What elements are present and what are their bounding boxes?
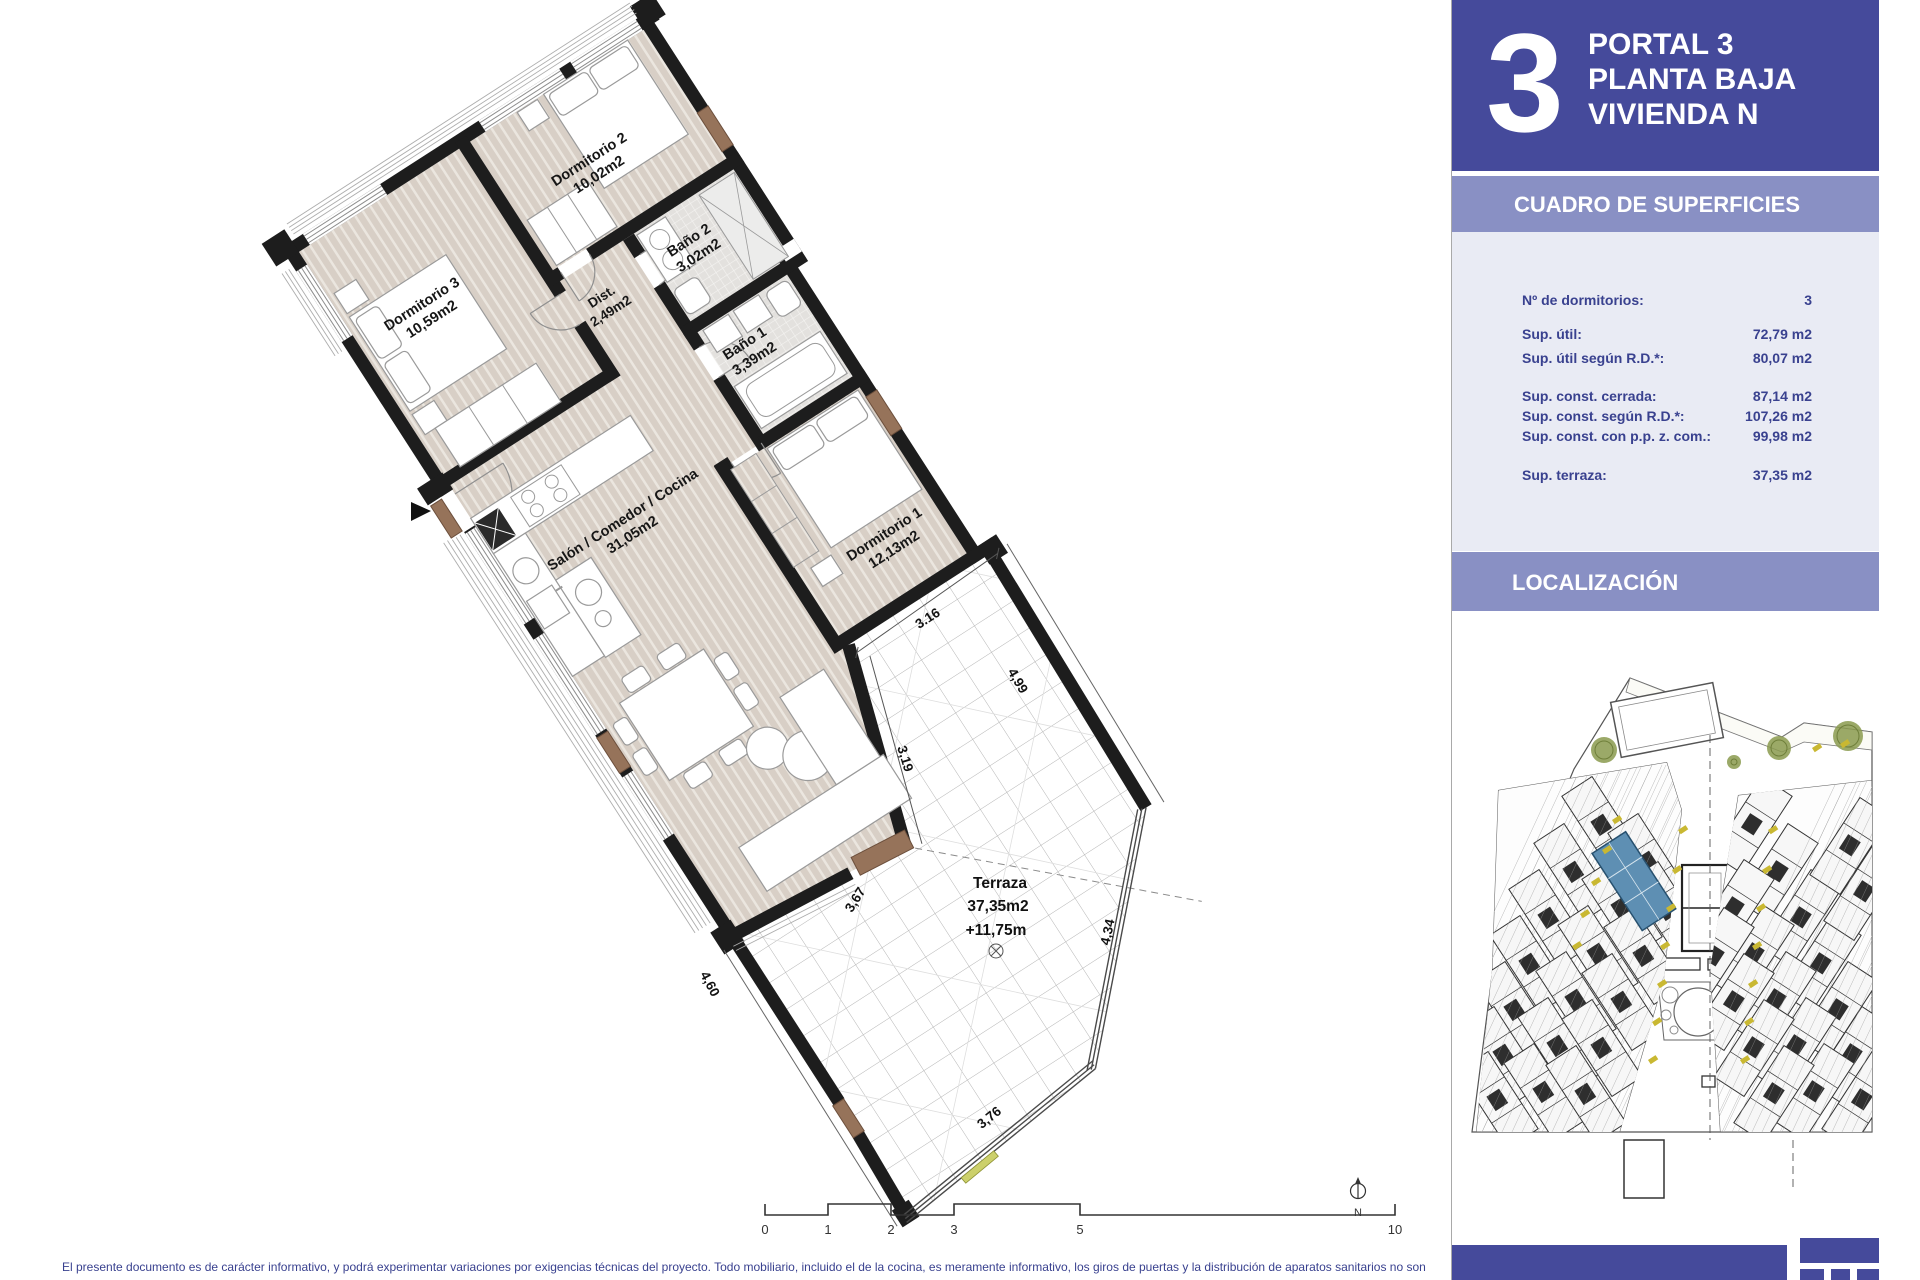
svg-text:37,35m2: 37,35m2 [967,898,1028,915]
svg-text:4,60: 4,60 [697,969,723,999]
svg-text:Terraza: Terraza [973,875,1027,892]
svg-text:10: 10 [1388,1222,1402,1237]
svg-text:2: 2 [887,1222,894,1237]
svg-text:+11,75m: +11,75m [966,922,1027,939]
svg-text:0: 0 [761,1222,768,1237]
svg-text:N: N [1354,1207,1362,1219]
svg-text:3: 3 [950,1222,957,1237]
svg-text:1: 1 [824,1222,831,1237]
svg-text:5: 5 [1076,1222,1083,1237]
